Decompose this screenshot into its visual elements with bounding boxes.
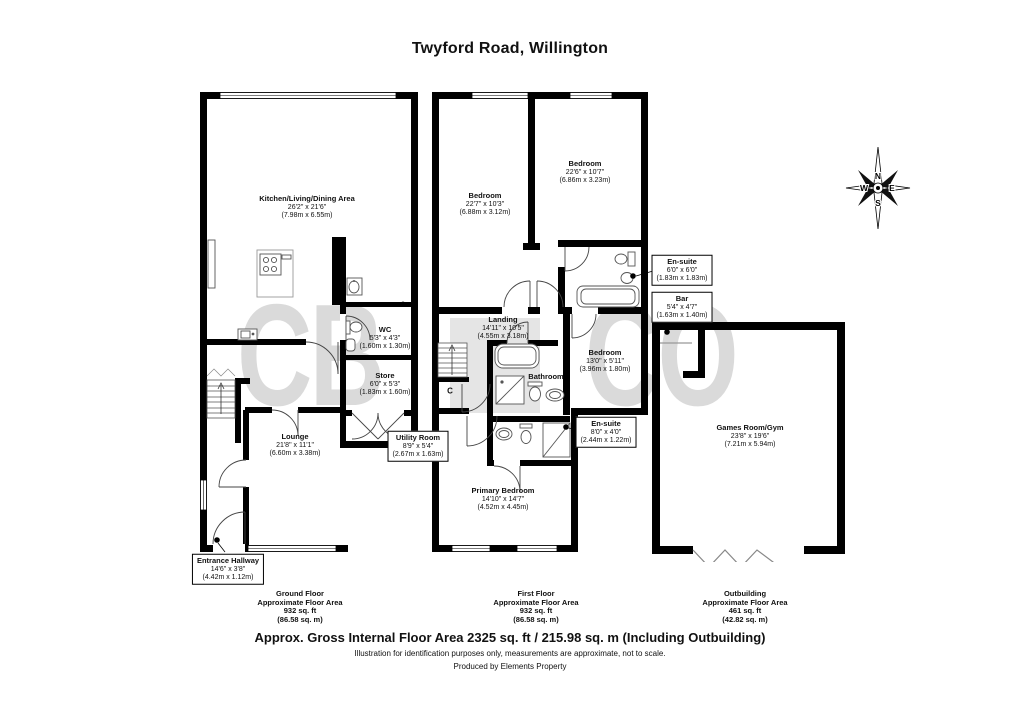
ensuite2-toilet-icon — [520, 424, 532, 444]
ensuite2-shower-icon — [543, 423, 570, 457]
disclaimer-line: Illustration for identification purposes… — [0, 649, 1020, 658]
cupboard-label: C — [447, 387, 453, 396]
gross-area-line: Approx. Gross Internal Floor Area 2325 s… — [0, 630, 1020, 645]
room-label-lounge: Lounge 21'8" x 11'1" (6.60m x 3.38m) — [270, 433, 321, 458]
room-label-games-room: Games Room/Gym 23'8" x 19'6" (7.21m x 5.… — [716, 424, 783, 449]
compass-north-label: N — [875, 171, 881, 181]
room-label-ensuite-lower: En-suite 8'0" x 4'0" (2.44m x 1.22m) — [576, 417, 637, 448]
floor-area-sqm: (86.58 sq. m) — [493, 616, 578, 625]
floorplan-page: Twyford Road, Willington CB CO — [0, 0, 1020, 720]
room-label-store: Store 6'0" x 5'3" (1.83m x 1.60m) — [360, 372, 411, 397]
opening-break-line — [693, 550, 777, 562]
room-label-kitchen: Kitchen/Living/Dining Area 26'2" x 21'6"… — [259, 195, 355, 220]
first-floor-plan — [432, 92, 648, 552]
page-title: Twyford Road, Willington — [0, 40, 1020, 58]
area-summary-outbuilding: Outbuilding Approximate Floor Area 461 s… — [702, 590, 787, 624]
ensuite-toilet-icon — [615, 252, 635, 266]
bathroom-toilet-icon — [528, 382, 542, 401]
compass-east-label: E — [889, 183, 895, 193]
bathroom-basin-icon — [546, 389, 564, 401]
compass-south-label: S — [875, 198, 881, 208]
room-label-utility: Utility Room 8'9" x 5'4" (2.67m x 1.63m) — [388, 431, 449, 462]
area-summary-first-floor: First Floor Approximate Floor Area 932 s… — [493, 590, 578, 624]
stairs-icon — [207, 369, 235, 418]
ensuite2-basin-icon — [496, 428, 512, 440]
kitchen-counter — [208, 240, 215, 288]
stairs-icon — [438, 343, 467, 377]
ground-floor-walls — [200, 92, 418, 552]
wc-basin-icon — [346, 339, 355, 351]
compass-west-label: W — [860, 183, 869, 193]
room-label-ensuite-top: En-suite 6'0" x 6'0" (1.83m x 1.83m) — [652, 255, 713, 286]
kitchen-sink-icon — [238, 329, 257, 340]
room-label-bedroom-mid: Bedroom 13'0" x 5'11" (3.96m x 1.80m) — [580, 349, 631, 374]
ensuite-bath-icon — [577, 286, 639, 307]
bathroom-shower-icon — [496, 376, 524, 404]
room-label-primary-bedroom: Primary Bedroom 14'10" x 14'7" (4.52m x … — [472, 487, 535, 512]
room-label-bedroom-right: Bedroom 22'6" x 10'7" (6.86m x 3.23m) — [560, 160, 611, 185]
ensuite-basin-icon — [621, 273, 633, 284]
room-label-bedroom-left: Bedroom 22'7" x 10'3" (6.88m x 3.12m) — [460, 192, 511, 217]
room-label-bar: Bar 5'4" x 4'7" (1.63m x 1.40m) — [652, 292, 713, 323]
room-label-wc: WC 5'3" x 4'3" (1.60m x 1.30m) — [360, 326, 411, 351]
alcove-sink-icon — [347, 278, 362, 295]
room-label-bathroom: Bathroom — [528, 373, 563, 382]
area-summary-ground-floor: Ground Floor Approximate Floor Area 932 … — [257, 590, 342, 624]
compass-icon: N E S W — [845, 146, 911, 230]
bathroom-bath-icon — [495, 344, 539, 368]
room-label-landing: Landing 14'11" x 10'5" (4.55m x 3.18m) — [478, 316, 529, 341]
floor-area-sqm: (86.58 sq. m) — [257, 616, 342, 625]
room-label-entrance-hallway: Entrance Hallway 14'6" x 3'8" (4.42m x 1… — [192, 554, 264, 585]
floor-area-sqm: (42.82 sq. m) — [702, 616, 787, 625]
ground-floor-windows — [201, 93, 397, 552]
produced-by-line: Produced by Elements Property — [0, 662, 1020, 671]
